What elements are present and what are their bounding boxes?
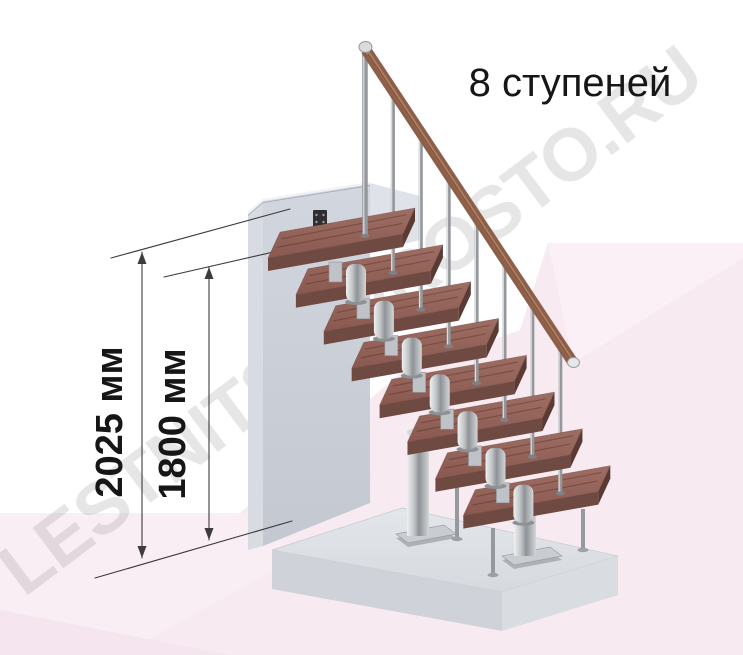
baluster-base-fitting xyxy=(500,418,509,422)
stringer-module xyxy=(513,485,533,523)
baluster-base-fitting xyxy=(388,271,397,275)
stringer-module xyxy=(458,411,478,449)
diagram-canvas: LESTNITSA-PROSTO.RU 2025 xyxy=(0,0,743,655)
tread-leg-foot xyxy=(488,573,499,577)
handrail-top-cap xyxy=(359,42,372,53)
stringer-module xyxy=(374,301,394,339)
dimension-label-2025: 2025 мм xyxy=(89,346,131,497)
dimension-label-1800: 1800 мм xyxy=(152,348,194,499)
step-count-title: 8 ступеней xyxy=(469,61,672,105)
baluster-base-fitting xyxy=(528,455,537,459)
staircase-diagram: LESTNITSA-PROSTO.RU 2025 xyxy=(0,0,743,655)
baluster-base-fitting xyxy=(361,234,370,238)
stringer-module xyxy=(346,264,366,302)
tread-leg-foot xyxy=(452,537,463,541)
baluster-base-fitting xyxy=(472,381,481,385)
stringer-module xyxy=(430,374,450,412)
stringer-plate xyxy=(329,262,342,282)
baluster-base-fitting xyxy=(556,492,565,496)
handrail-end-cap xyxy=(568,358,580,368)
stringer-module xyxy=(486,448,506,486)
baluster-base-fitting xyxy=(416,308,425,312)
stringer-module xyxy=(402,338,422,376)
wall-side-face xyxy=(248,201,263,550)
tread-leg-foot xyxy=(578,548,589,552)
baluster-base-fitting xyxy=(444,344,453,348)
